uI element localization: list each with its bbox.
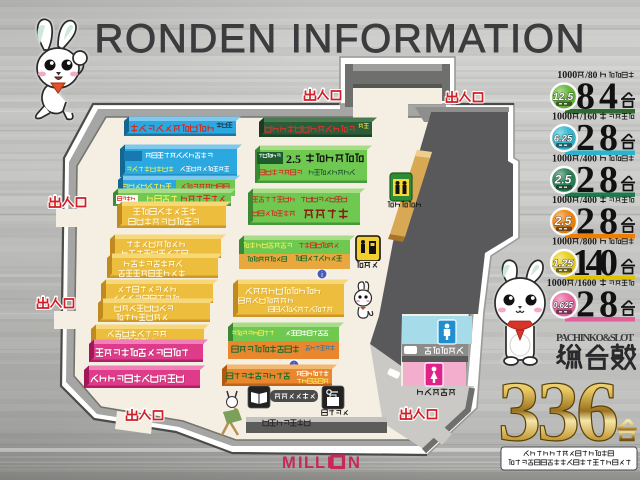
svg-text:N: N	[348, 454, 360, 472]
svg-text:1000: 1000	[552, 112, 572, 123]
svg-text:L: L	[315, 454, 325, 472]
svg-text:2.5: 2.5	[554, 214, 572, 228]
svg-text:1000: 1000	[552, 195, 572, 206]
svg-text:336: 336	[498, 363, 619, 459]
svg-text:PACHINKO&SLOT: PACHINKO&SLOT	[556, 333, 634, 344]
svg-text:0.625: 0.625	[553, 301, 574, 310]
svg-text:1000: 1000	[557, 70, 577, 81]
svg-text:12.5: 12.5	[553, 91, 574, 103]
svg-text:1.25: 1.25	[553, 258, 574, 270]
svg-text:I: I	[298, 454, 303, 472]
svg-text:140: 140	[572, 242, 618, 284]
svg-text:1000: 1000	[552, 154, 572, 165]
svg-text:2.5: 2.5	[554, 173, 572, 187]
svg-text:2.5: 2.5	[286, 152, 301, 166]
svg-text:RONDEN INFORMATION: RONDEN INFORMATION	[95, 17, 587, 61]
svg-text:1000: 1000	[552, 237, 572, 248]
svg-text:1000: 1000	[547, 278, 567, 289]
svg-text:L: L	[304, 454, 314, 472]
svg-text:M: M	[282, 454, 296, 472]
svg-text:6.25: 6.25	[554, 134, 573, 145]
